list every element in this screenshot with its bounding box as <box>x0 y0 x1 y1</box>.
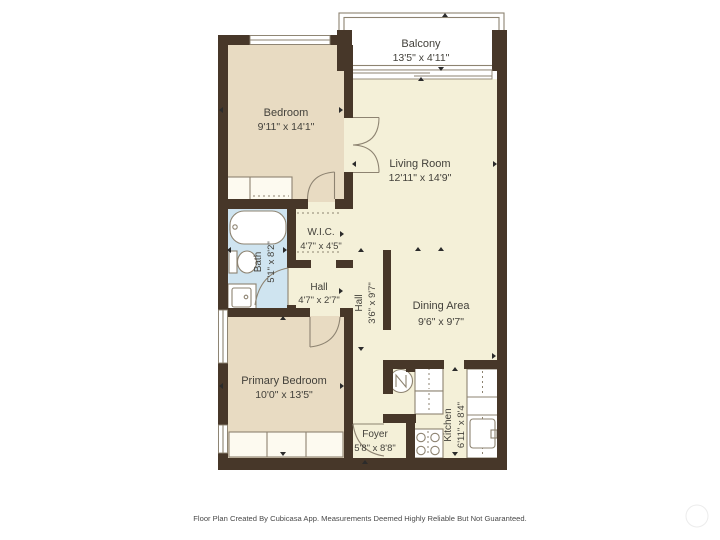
primary-bedroom-label: Primary Bedroom <box>241 375 327 387</box>
dresser <box>226 177 292 202</box>
wall-wic-bottom <box>287 260 311 268</box>
wall-laundry-left <box>383 360 393 394</box>
wall-wic-bottom-stub <box>336 260 353 268</box>
wic-dims: 4'7" x 4'5" <box>300 241 342 252</box>
bath-label: Bath <box>253 252 264 273</box>
primary-bedroom-furniture <box>229 432 343 457</box>
wic-hall-floor <box>287 200 353 310</box>
bedroom-furniture <box>226 177 292 202</box>
hall-label: Hall <box>354 294 365 311</box>
wall-bedroom-bottom-stub <box>335 199 353 209</box>
balcony-post-right <box>492 30 507 71</box>
floor-plan-page: Balcony 13'5" x 4'11" Bedroom 9'11" x 14… <box>0 0 720 540</box>
primary-bedroom-dims: 10'0" x 13'5" <box>255 389 313 401</box>
wall-primary-top <box>218 308 310 317</box>
wall-left <box>218 35 228 468</box>
wall-foyer-kitchen-divider <box>406 414 415 470</box>
bathtub <box>230 211 286 244</box>
living-room-dims: 12'11" x 14'9" <box>389 172 452 184</box>
wall-hall-dining-divider <box>383 250 391 330</box>
wall-laundry-top-stub <box>406 360 415 372</box>
balcony-label: Balcony <box>401 38 441 50</box>
sliding-door <box>352 70 492 79</box>
bedroom-dims: 9'11" x 14'1" <box>258 121 315 133</box>
wall-bath-wic-divider <box>287 199 296 267</box>
wic-label: W.I.C. <box>307 227 334 238</box>
wall-right <box>497 70 507 470</box>
dining-area-dims: 9'6" x 9'7" <box>418 316 464 328</box>
footer-disclaimer: Floor Plan Created By Cubicasa App. Meas… <box>193 514 526 523</box>
wall-dining-bottom-right <box>464 360 507 369</box>
hall-small-dims: 4'7" x 2'7" <box>298 295 340 306</box>
foyer-dims: 5'8" x 8'8" <box>354 443 396 454</box>
wardrobe <box>229 432 343 457</box>
balcony-dims: 13'5" x 4'11" <box>393 52 450 64</box>
bedroom-label: Bedroom <box>264 107 309 119</box>
wall-primary-right <box>344 308 353 458</box>
wall-bedroom-living-upper <box>344 45 353 118</box>
foyer-label: Foyer <box>362 429 388 440</box>
toilet-tank <box>229 251 237 273</box>
hall-small-label: Hall <box>310 282 327 293</box>
watermark-circle <box>686 505 708 527</box>
kitchen-dims: 6'11" x 8'4" <box>456 402 467 448</box>
dining-area-label: Dining Area <box>413 300 471 312</box>
hall-dims: 3'6" x 9'7" <box>367 282 378 324</box>
bath-dims: 5'1" x 8'2" <box>266 241 277 283</box>
floor-plan-drawing: Balcony 13'5" x 4'11" Bedroom 9'11" x 14… <box>0 0 720 540</box>
living-room-label: Living Room <box>389 158 450 170</box>
kitchen-label: Kitchen <box>443 408 454 441</box>
